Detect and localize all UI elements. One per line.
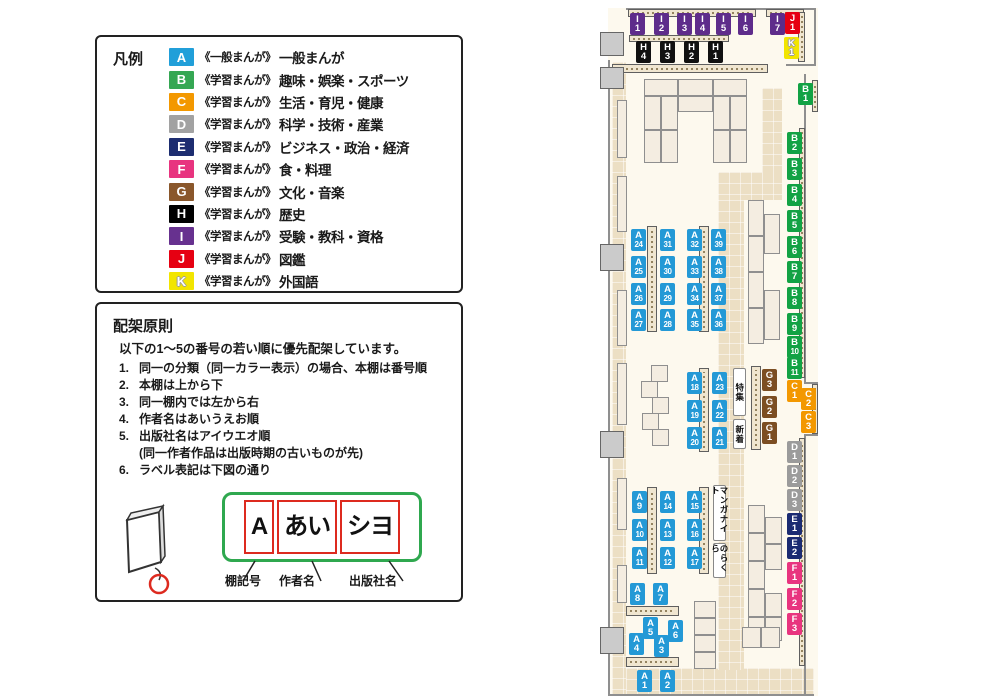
shelf-label-A35: A35 [687,309,702,331]
shelf-label-number: 4 [792,195,797,204]
shelf-label-number: 3 [806,422,811,431]
corridor-strip [626,668,814,695]
shelf-label-A4: A4 [629,633,644,655]
shelf-label-number: 15 [691,502,699,511]
shelf-label-number: 2 [689,52,694,61]
shelf-unit [644,96,661,130]
shelf-label-D2: D2 [787,465,802,487]
map-sign-3: マンガナイト [713,485,726,541]
shelf-label-I3: I3 [677,13,692,35]
shelf-label-number: 37 [715,294,723,303]
shelf-label-number: 1 [803,94,808,103]
shelf-label-A16: A16 [687,519,702,541]
shelf-label-number: 6 [743,24,748,33]
shelf-label-number: 10 [791,347,799,356]
shelf-label-letter: B [791,359,798,368]
shelf-label-number: 2 [792,548,797,557]
shelf-label-number: 27 [635,320,643,329]
shelf-label-number: 2 [767,407,772,416]
shelf-label-A31: A31 [660,229,675,251]
shelf-label-number: 1 [792,391,797,400]
shelf-label-letter: A [716,402,723,411]
shelf-label-number: 3 [665,52,670,61]
shelf-label-letter: A [635,258,642,267]
shelf-label-number: 11 [791,368,798,377]
shelf-label-H3: H3 [660,41,675,63]
shelf-label-number: 3 [767,380,772,389]
table-square [641,381,658,398]
shelf-label-A15: A15 [687,491,702,513]
shelf-unit [713,96,730,130]
shelf-label-letter: A [691,549,698,558]
shelf-unit [748,200,764,236]
shelf-label-F2: F2 [787,588,802,610]
shelf-label-F3: F3 [787,613,802,635]
shelf-unit [765,593,782,617]
shelf-label-letter: A [664,285,671,294]
shelf-label-E1: E1 [787,513,802,535]
shelf-label-F1: F1 [787,562,802,584]
shelf-label-letter: A [691,231,698,240]
shelf-unit [678,96,713,112]
shelf-label-A28: A28 [660,309,675,331]
wall [814,8,816,66]
shelf-unit [761,627,780,648]
shelf-label-A30: A30 [660,256,675,278]
shelf-label-A27: A27 [631,309,646,331]
shelf-unit [730,96,747,130]
shelf-unit [661,130,678,163]
shelf-label-letter: A [664,258,671,267]
shelf-label-A2: A2 [660,670,675,692]
shelf-label-number: 25 [635,267,643,276]
shelf-label-letter: A [716,429,723,438]
shelf-label-letter: A [716,374,723,383]
shelf-strip [612,64,768,73]
shelf-label-A6: A6 [668,620,683,642]
shelf-label-A25: A25 [631,256,646,278]
shelf-label-number: 31 [664,240,672,249]
shelf-label-number: 12 [664,558,672,567]
shelf-label-number: 2 [792,599,797,608]
shelf-label-I5: I5 [716,13,731,35]
door-marker [600,67,624,89]
shelf-label-number: 33 [691,267,699,276]
pillar [617,176,627,232]
shelf-label-number: 5 [792,221,797,230]
shelf-label-letter: A [664,521,671,530]
shelf-label-A32: A32 [687,229,702,251]
shelf-label-number: 2 [806,399,811,408]
shelf-label-number: 2 [792,476,797,485]
shelf-label-I2: I2 [654,13,669,35]
shelf-label-A12: A12 [660,547,675,569]
shelf-label-A9: A9 [632,491,647,513]
shelf-label-letter: A [715,258,722,267]
shelf-label-A33: A33 [687,256,702,278]
wall [786,64,816,66]
floor-map: I1I2I3I4I5I6I7J1K1H4H3H2H1B1B2B3B4B5B6B7… [0,0,1000,700]
shelf-unit [748,308,764,344]
shelf-label-number: 3 [792,624,797,633]
shelf-label-B8: B8 [787,287,802,309]
shelf-unit [748,272,764,308]
shelf-label-number: 1 [642,681,647,690]
shelf-label-letter: A [691,258,698,267]
shelf-label-letter: A [715,231,722,240]
shelf-label-H4: H4 [636,41,651,63]
shelf-unit [748,533,765,561]
shelf-label-number: 2 [792,143,797,152]
shelf-label-number: 7 [775,24,780,33]
shelf-label-letter: A [691,521,698,530]
shelf-label-number: 4 [634,644,639,653]
shelf-label-B7: B7 [787,261,802,283]
shelf-label-B3: B3 [787,158,802,180]
table-square [652,429,669,446]
pillar [617,478,627,530]
shelf-label-number: 1 [792,452,797,461]
shelf-unit [748,589,765,617]
shelf-unit [713,79,747,96]
shelf-unit [694,652,716,669]
door-marker [600,627,624,654]
shelf-label-number: 2 [665,681,670,690]
shelf-label-letter: A [691,429,698,438]
shelf-label-number: 7 [792,272,797,281]
shelf-label-number: 32 [691,240,699,249]
shelf-label-letter: A [636,521,643,530]
shelf-label-A19: A19 [687,400,702,422]
shelf-label-A23: A23 [712,372,727,394]
shelf-label-A14: A14 [660,491,675,513]
shelf-label-B2: B2 [787,132,802,154]
shelf-label-letter: A [635,311,642,320]
shelf-unit [748,236,764,272]
shelf-label-number: 7 [658,594,663,603]
shelf-label-A3: A3 [654,635,669,657]
shelf-label-number: 30 [664,267,672,276]
shelf-label-number: 3 [659,646,664,655]
shelf-label-A13: A13 [660,519,675,541]
shelf-label-number: 2 [659,24,664,33]
shelf-label-letter: B [791,338,798,347]
shelf-label-number: 3 [682,24,687,33]
shelf-unit [764,290,780,340]
shelf-unit [748,505,765,533]
shelf-label-A24: A24 [631,229,646,251]
page: 凡例 A《一般まんが》一般まんがB《学習まんが》趣味・娯楽・スポーツC《学習まん… [0,0,1000,700]
shelf-unit [694,635,716,652]
shelf-label-A7: A7 [653,583,668,605]
shelf-label-letter: A [664,311,671,320]
shelf-label-number: 23 [716,383,724,392]
shelf-label-A34: A34 [687,283,702,305]
shelf-label-letter: A [691,402,698,411]
table-square [651,365,668,382]
shelf-label-number: 11 [636,558,643,567]
shelf-label-letter: A [635,231,642,240]
shelf-label-number: 26 [635,294,643,303]
shelf-label-letter: A [691,374,698,383]
shelf-label-A21: A21 [712,427,727,449]
shelf-label-A17: A17 [687,547,702,569]
shelf-label-E2: E2 [787,537,802,559]
shelf-label-B4: B4 [787,184,802,206]
shelf-unit [742,627,761,648]
shelf-label-number: 20 [691,438,699,447]
shelf-label-letter: A [635,285,642,294]
shelf-label-A39: A39 [711,229,726,251]
wall [804,434,818,436]
shelf-label-number: 8 [635,594,640,603]
shelf-label-A37: A37 [711,283,726,305]
shelf-strip [626,606,679,616]
shelf-unit [713,130,730,163]
pillar [617,363,627,425]
shelf-label-number: 1 [767,433,772,442]
shelf-label-number: 3 [792,500,797,509]
shelf-label-letter: A [715,311,722,320]
pillar [617,290,627,346]
shelf-label-number: 19 [691,411,699,420]
shelf-label-number: 24 [635,240,643,249]
pillar [617,100,627,158]
shelf-strip [626,657,679,667]
shelf-label-A38: A38 [711,256,726,278]
shelf-label-number: 35 [691,320,699,329]
shelf-unit [730,130,747,163]
shelf-label-C3: C3 [801,411,816,433]
shelf-strip [647,487,657,574]
shelf-label-number: 4 [700,24,705,33]
shelf-label-number: 9 [637,502,642,511]
shelf-label-A18: A18 [687,372,702,394]
shelf-label-I6: I6 [738,13,753,35]
shelf-label-letter: A [691,311,698,320]
shelf-label-A1: A1 [637,670,652,692]
shelf-unit [678,79,713,96]
shelf-unit [644,79,678,96]
shelf-label-I4: I4 [695,13,710,35]
shelf-label-number: 5 [721,24,726,33]
shelf-label-number: 29 [664,294,672,303]
shelf-unit [644,130,661,163]
map-sign-2: 新着 [733,419,746,449]
shelf-label-A11: A11 [632,547,647,569]
shelf-unit [694,601,716,618]
shelf-label-letter: A [664,493,671,502]
shelf-unit [661,96,678,130]
shelf-label-number: 38 [715,267,723,276]
pillar [617,565,627,603]
door-marker [600,244,624,271]
shelf-label-number: 5 [648,628,653,637]
shelf-label-number: 1 [790,23,795,32]
shelf-label-number: 4 [641,52,646,61]
shelf-label-number: 1 [789,48,794,57]
shelf-label-number: 8 [792,298,797,307]
shelf-label-letter: A [691,285,698,294]
shelf-label-number: 18 [691,383,699,392]
shelf-label-B5: B5 [787,210,802,232]
shelf-label-number: 34 [691,294,699,303]
shelf-label-number: 3 [792,169,797,178]
shelf-label-A36: A36 [711,309,726,331]
shelf-label-number: 1 [792,524,797,533]
shelf-label-I7: I7 [770,13,785,35]
shelf-label-G1: G1 [762,422,777,444]
map-sign-4: のらくら [713,543,726,578]
shelf-label-H1: H1 [708,41,723,63]
shelf-label-B11: B11 [787,357,802,379]
shelf-label-letter: A [691,493,698,502]
shelf-label-A20: A20 [687,427,702,449]
shelf-label-A8: A8 [630,583,645,605]
shelf-label-number: 28 [664,320,672,329]
shelf-label-C1: C1 [787,380,802,402]
shelf-label-letter: A [636,549,643,558]
shelf-label-number: 10 [636,530,644,539]
shelf-label-number: 36 [715,320,723,329]
shelf-label-number: 13 [664,530,672,539]
wall [608,60,610,696]
shelf-label-D3: D3 [787,489,802,511]
shelf-label-G2: G2 [762,396,777,418]
shelf-label-number: 9 [792,324,797,333]
shelf-label-letter: A [664,231,671,240]
shelf-label-B6: B6 [787,236,802,258]
shelf-label-G3: G3 [762,369,777,391]
shelf-label-A29: A29 [660,283,675,305]
shelf-label-A26: A26 [631,283,646,305]
map-sign-1: 特集 [733,368,746,416]
shelf-unit [694,618,716,635]
shelf-label-B10: B10 [787,336,802,358]
shelf-strip [628,9,756,17]
shelf-label-A22: A22 [712,400,727,422]
shelf-label-number: 6 [673,631,678,640]
shelf-label-I1: I1 [630,13,645,35]
shelf-label-number: 17 [691,558,699,567]
shelf-label-number: 21 [716,438,724,447]
shelf-label-number: 6 [792,247,797,256]
shelf-label-B9: B9 [787,313,802,335]
table-square [642,413,659,430]
shelf-label-number: 1 [792,573,797,582]
shelf-unit [764,214,780,254]
shelf-label-number: 22 [716,411,724,420]
shelf-label-A10: A10 [632,519,647,541]
shelf-label-number: 39 [715,240,723,249]
shelf-label-C2: C2 [801,388,816,410]
shelf-unit [748,561,765,589]
shelf-label-B1: B1 [798,83,813,105]
corridor-strip [762,88,782,174]
table-square [652,397,669,414]
shelf-label-number: 1 [713,52,718,61]
wall [608,694,814,696]
shelf-unit [765,517,782,544]
shelf-strip [647,226,657,332]
shelf-label-number: 1 [635,24,640,33]
corridor-strip [718,172,782,200]
shelf-label-K1: K1 [784,37,799,59]
shelf-strip [751,366,761,450]
shelf-label-J1: J1 [785,12,800,34]
shelf-label-letter: A [664,549,671,558]
shelf-label-H2: H2 [684,41,699,63]
shelf-label-letter: A [715,285,722,294]
door-marker [600,32,624,56]
shelf-label-number: 16 [691,530,699,539]
shelf-label-D1: D1 [787,441,802,463]
shelf-unit [765,544,782,570]
door-marker [600,431,624,458]
shelf-label-number: 14 [664,502,672,511]
